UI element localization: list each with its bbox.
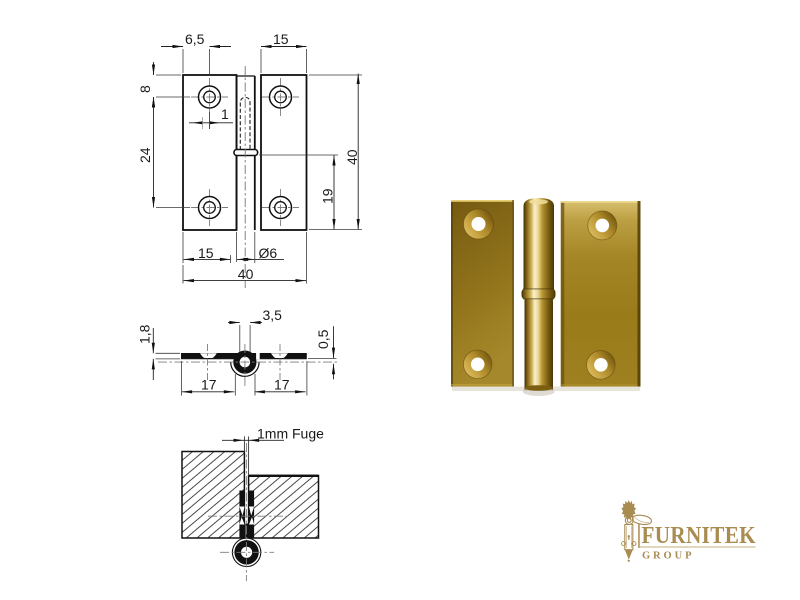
svg-text:19: 19 — [320, 188, 336, 204]
svg-text:1,8: 1,8 — [137, 324, 153, 344]
svg-text:15: 15 — [198, 245, 214, 261]
svg-text:3,5: 3,5 — [263, 307, 283, 323]
svg-text:40: 40 — [344, 149, 360, 165]
svg-text:1: 1 — [221, 106, 229, 122]
svg-text:24: 24 — [137, 147, 153, 163]
svg-text:FURNITEK: FURNITEK — [642, 522, 757, 549]
svg-text:GROUP: GROUP — [642, 551, 697, 562]
svg-text:1mm Fuge: 1mm Fuge — [257, 426, 324, 442]
svg-text:0,5: 0,5 — [315, 329, 331, 349]
svg-text:15: 15 — [273, 31, 289, 47]
svg-text:Ø6: Ø6 — [259, 245, 278, 261]
svg-text:8: 8 — [137, 85, 153, 93]
svg-text:17: 17 — [201, 377, 217, 393]
svg-text:40: 40 — [238, 266, 254, 282]
svg-text:17: 17 — [274, 377, 290, 393]
svg-text:6,5: 6,5 — [185, 31, 205, 47]
